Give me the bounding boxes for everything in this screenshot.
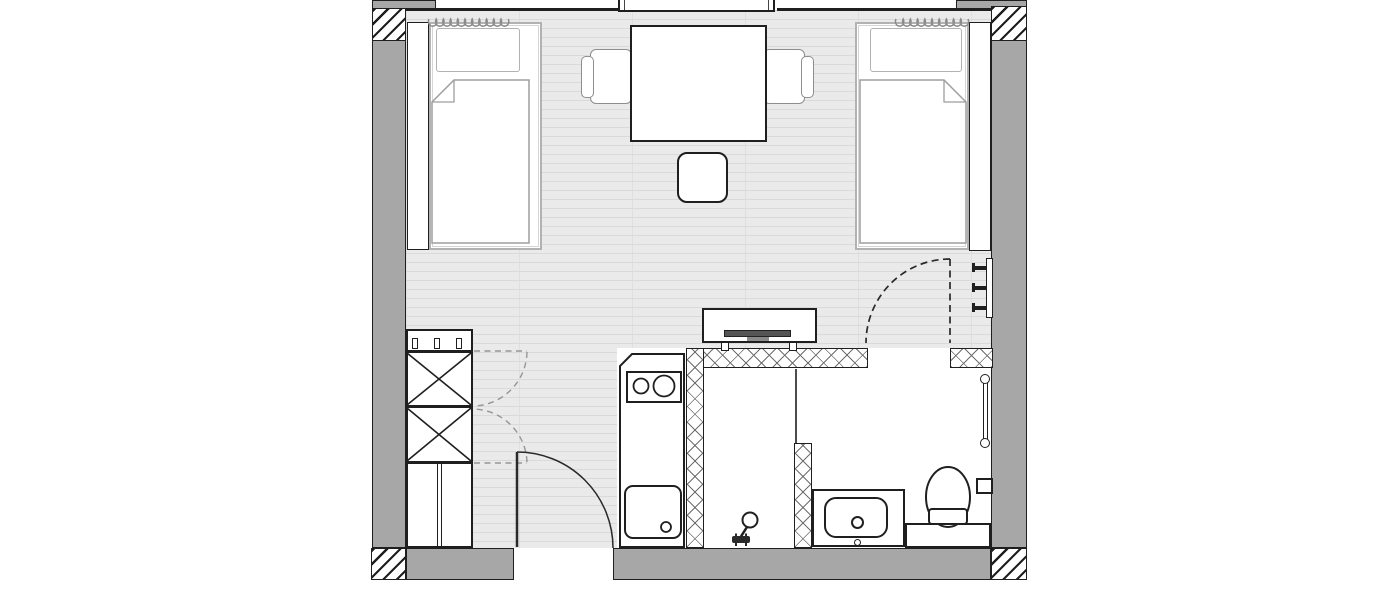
line-art-layer xyxy=(0,0,1400,600)
radiator-left-icon xyxy=(428,19,508,26)
wardrobe-x-marks xyxy=(407,353,471,461)
entry-door xyxy=(517,452,613,548)
burner-small xyxy=(634,379,649,394)
toilet xyxy=(926,467,970,527)
kitchen-sink xyxy=(625,486,681,538)
duvet-left xyxy=(432,80,529,243)
burner-large xyxy=(654,376,675,397)
radiator-right-icon xyxy=(895,19,968,26)
sink-drain xyxy=(661,522,671,532)
wardrobe-door-swings xyxy=(474,351,527,463)
duvet-right xyxy=(860,80,966,243)
kitchen-counter xyxy=(620,354,684,547)
bathroom-door xyxy=(866,259,950,343)
hand-shower-icon xyxy=(732,513,758,547)
floor-plan-canvas xyxy=(0,0,1400,600)
